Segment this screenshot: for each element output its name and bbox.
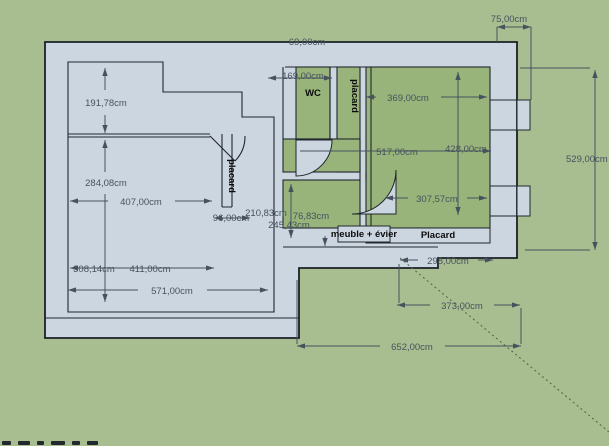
dim-wc-width: 169,00cm <box>282 71 324 82</box>
illegible-text-fragment <box>2 440 98 446</box>
text-smudge <box>2 441 11 445</box>
cabinet-label: meuble + évier <box>331 229 398 240</box>
text-smudge <box>72 441 80 445</box>
floorplan-drawing: 191,78cm 284,08cm 407,00cm 308,14cm 411,… <box>0 0 609 446</box>
text-smudge <box>37 441 44 445</box>
dim-bottom-mid: 373,00cm <box>441 301 483 312</box>
dim-left-top-height: 191,78cm <box>85 98 127 109</box>
wc-label: WC <box>305 88 321 99</box>
text-smudge <box>18 441 30 445</box>
text-smudge <box>51 441 65 445</box>
dim-bedroom-width: 369,00cm <box>387 93 429 104</box>
window-bump-bottom <box>517 186 530 216</box>
dim-top-offset: 75,00cm <box>491 14 528 25</box>
dim-bedroom-height: 428,00cm <box>445 144 487 155</box>
dim-left-total-width: 571,00cm <box>151 286 193 297</box>
dim-left-inner-width: 411,00cm <box>129 264 170 275</box>
bedroom-closet-label: Placard <box>421 230 456 241</box>
dim-closet-width: 96,00cm <box>213 213 250 224</box>
dim-top-wall: 69,00cm <box>289 37 326 48</box>
dim-bath-width: 245,43cm <box>268 220 310 231</box>
dim-mid-width: 517,00cm <box>376 147 418 158</box>
dim-bottom-band: 298,00cm <box>427 256 469 267</box>
dim-bottom-total: 652,00cm <box>391 342 433 353</box>
closet-left-label: placard <box>226 159 237 193</box>
dim-right-total-height: 529,00cm <box>566 154 608 165</box>
dim-left-low-height: 308,14cm <box>73 264 115 275</box>
dim-left-room-width: 407,00cm <box>120 197 162 208</box>
dim-left-mid-height: 284,08cm <box>85 178 127 189</box>
dim-bedroom-inner: 307,57cm <box>416 194 458 205</box>
sketchup-viewport[interactable]: 191,78cm 284,08cm 407,00cm 308,14cm 411,… <box>0 0 609 446</box>
closet-strip-label: placard <box>349 79 360 113</box>
text-smudge <box>87 441 98 445</box>
window-bump-top <box>517 100 530 130</box>
dim-hall-width: 210,83cm <box>245 208 287 219</box>
